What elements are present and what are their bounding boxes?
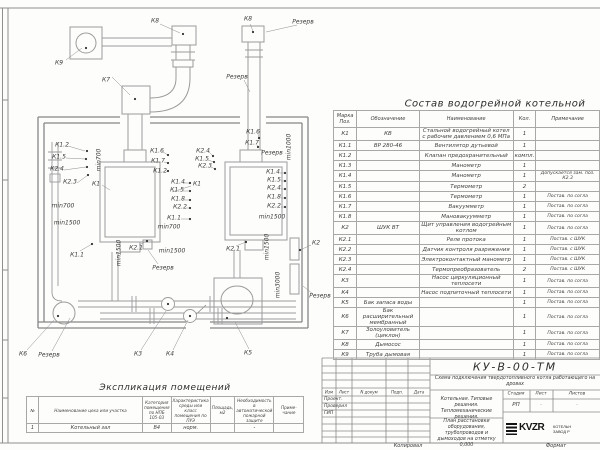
format-label: Формат xyxy=(546,443,566,449)
comp-cell-q: компл. xyxy=(513,151,536,161)
comp-cell-p: Постав. по согла xyxy=(536,350,600,360)
comp-cell-n: Насос циркуляционный теплосети xyxy=(419,275,513,288)
rev-col-izm: Изм xyxy=(325,390,333,395)
doc-title: Схема подключения твердотопливного котла… xyxy=(432,376,598,388)
kvzr-wave-logo-icon xyxy=(506,423,517,435)
expl-col-header: Необходимость в автоматической пожарной … xyxy=(235,397,274,424)
comp-cell-d xyxy=(357,212,420,222)
comp-cell-d xyxy=(357,171,420,182)
comp-cell-m: К7 xyxy=(334,327,357,340)
expl-col-header: № xyxy=(27,397,39,424)
comp-cell-q: 1 xyxy=(513,255,536,265)
comp-row: К4Насос подпиточный теплосети1Постав. по… xyxy=(334,288,600,298)
equipment xyxy=(53,150,299,324)
comp-cell-p: Постав. по согла xyxy=(536,275,600,288)
flue-gas-train xyxy=(70,26,264,150)
comp-cell-q: 1 xyxy=(513,288,536,298)
comp-cell-q: 2 xyxy=(513,265,536,275)
comp-cell-p: Постав. с ШУК xyxy=(536,255,600,265)
comp-cell-q: 1 xyxy=(513,128,536,141)
drawing-sheet: { "composition_table": { "title": "Соста… xyxy=(0,0,600,450)
comp-cell-n: Манометр xyxy=(419,161,513,171)
comp-cell-q: 1 xyxy=(513,222,536,235)
comp-cell-p: Постав. по согла xyxy=(536,288,600,298)
comp-cell-p: Постав. по согла xyxy=(536,192,600,202)
expl-col-header: Категория помещения по НПБ 105-03 xyxy=(143,397,172,424)
comp-cell-p: Постав. с ШУК xyxy=(536,235,600,245)
comp-row: К9Труба дымовая1Постав. по согла xyxy=(334,350,600,360)
expl-row: 1Котельный залВ4норм.- xyxy=(27,424,304,433)
comp-cell-n: Стальной водогрейный котел с рабочим дав… xyxy=(419,128,513,141)
comp-cell-d: ШУК ВТ xyxy=(357,222,420,235)
comp-cell-m: К6 xyxy=(334,308,357,327)
comp-cell-n: Вакуумметр xyxy=(419,202,513,212)
comp-cell-d xyxy=(357,275,420,288)
comp-cell-n xyxy=(419,327,513,340)
comp-cell-n: Вентилятор дутьевой xyxy=(419,141,513,151)
stage-value: РП xyxy=(512,402,519,408)
comp-cell-d: Труба дымовая xyxy=(357,350,420,360)
comp-cell-p: Постав. по согла xyxy=(536,298,600,308)
role-designer: Проект. xyxy=(324,397,343,402)
comp-cell-d xyxy=(357,245,420,255)
comp-cell-m: К5 xyxy=(334,298,357,308)
sheets-label: Листов xyxy=(569,392,585,397)
comp-cell-q: 1 xyxy=(513,327,536,340)
comp-cell-m: К2 xyxy=(334,222,357,235)
comp-cell-m: К3 xyxy=(334,275,357,288)
comp-cell-m: К8 xyxy=(334,340,357,350)
comp-cell-d xyxy=(357,235,420,245)
comp-cell-p: Допускается зам. поз. К2.3 xyxy=(536,171,600,182)
comp-cell-q: 1 xyxy=(513,308,536,327)
comp-cell-q: 1 xyxy=(513,161,536,171)
sheet-name: План расстановки оборудования, трубопров… xyxy=(431,419,502,449)
kvzr-logo-text: KVZR xyxy=(519,422,544,433)
comp-cell-q: 1 xyxy=(513,192,536,202)
comp-cell-n: Реле протока xyxy=(419,235,513,245)
comp-cell-n: Клапан предохранительный xyxy=(419,151,513,161)
comp-cell-d: Бак расширительный мембранный xyxy=(357,308,420,327)
comp-cell-p: Постав. по согла xyxy=(536,202,600,212)
comp-cell-m: К2.1 xyxy=(334,235,357,245)
comp-cell-n: Насос подпиточный теплосети xyxy=(419,288,513,298)
comp-cell-q: 1 xyxy=(513,350,536,360)
comp-cell-d: Бак запаса воды xyxy=(357,298,420,308)
expl-col-header: Характеристика среды или класс помещения… xyxy=(171,397,210,424)
expl-cell: 1 xyxy=(27,424,39,433)
comp-cell-m: К1.7 xyxy=(334,202,357,212)
expl-col-header: Наименование цеха или участка xyxy=(39,397,143,424)
comp-cell-d xyxy=(357,255,420,265)
composition-table-title: Состав водогрейной котельной xyxy=(405,99,586,110)
comp-cell-q: 1 xyxy=(513,275,536,288)
building-walls xyxy=(38,117,308,328)
comp-cell-d xyxy=(357,265,420,275)
comp-cell-n: Термометр xyxy=(419,182,513,192)
rev-col-list: Лист xyxy=(339,390,349,395)
comp-row: К7Золоуловитель (циклон)1Постав. по согл… xyxy=(334,327,600,340)
explication-table-title: Экспликация помещений xyxy=(99,383,230,393)
comp-col-header: Примечание xyxy=(536,111,600,128)
expl-cell xyxy=(274,424,304,433)
comp-cell-m: К9 xyxy=(334,350,357,360)
project-name: Котельная. Типовые решения. Тепломеханич… xyxy=(431,397,502,421)
comp-cell-n xyxy=(419,350,513,360)
sheet-value: - xyxy=(540,403,542,408)
comp-cell-m: К1.4 xyxy=(334,171,357,182)
comp-row: К1.4Манометр1Допускается зам. поз. К2.3 xyxy=(334,171,600,182)
comp-cell-q: 1 xyxy=(513,340,536,350)
comp-cell-m: К2.4 xyxy=(334,265,357,275)
comp-cell-p xyxy=(536,161,600,171)
expl-col-header: Приме- чание xyxy=(274,397,304,424)
comp-cell-n xyxy=(419,340,513,350)
comp-cell-q: 1 xyxy=(513,141,536,151)
comp-cell-q: 1 xyxy=(513,235,536,245)
comp-cell-n: Термометр xyxy=(419,192,513,202)
piping xyxy=(48,142,296,324)
comp-cell-d xyxy=(357,182,420,192)
comp-row: К3Насос циркуляционный теплосети1Постав.… xyxy=(334,275,600,288)
comp-cell-m: К2.3 xyxy=(334,255,357,265)
company-name-line2: ЗАВОД Р xyxy=(553,429,570,434)
rev-col-podp: Подп. xyxy=(391,390,403,395)
doc-number: КУ-В-00-ТМ xyxy=(473,361,557,374)
comp-cell-d xyxy=(357,288,420,298)
comp-row: К2.2Датчик контроля разряжения1Постав. с… xyxy=(334,245,600,255)
comp-cell-q: 1 xyxy=(513,212,536,222)
comp-row: К1.1ВР 280-46Вентилятор дутьевой1 xyxy=(334,141,600,151)
comp-row: К2ШУК ВТЩит управления водогрейным котло… xyxy=(334,222,600,235)
comp-cell-n xyxy=(419,298,513,308)
expl-cell xyxy=(210,424,235,433)
comp-cell-m: К1 xyxy=(334,128,357,141)
comp-cell-d: ВР 280-46 xyxy=(357,141,420,151)
comp-cell-p: Постав. с ШУК xyxy=(536,265,600,275)
comp-row: К1.2Клапан предохранительныйкомпл. xyxy=(334,151,600,161)
comp-row: К1.6Термометр1Постав. по согла xyxy=(334,192,600,202)
comp-cell-n xyxy=(419,308,513,327)
comp-row: К1.7Вакуумметр1Постав. по согла xyxy=(334,202,600,212)
comp-cell-p xyxy=(536,141,600,151)
comp-cell-p: Постав. с ШУК xyxy=(536,245,600,255)
comp-row: К1КВСтальной водогрейный котел с рабочим… xyxy=(334,128,600,141)
copied-by-label: Копировал xyxy=(394,443,423,449)
role-gip: ГИП xyxy=(324,411,333,416)
comp-cell-d xyxy=(357,192,420,202)
comp-cell-q: 1 xyxy=(513,245,536,255)
comp-cell-p xyxy=(536,151,600,161)
comp-row: К5Бак запаса воды1Постав. по согла xyxy=(334,298,600,308)
comp-cell-q: 1 xyxy=(513,298,536,308)
comp-col-header: Кол. xyxy=(513,111,536,128)
comp-cell-p: Постав. по согла xyxy=(536,327,600,340)
comp-cell-n: Мановакуумметр xyxy=(419,212,513,222)
comp-cell-q: 2 xyxy=(513,182,536,192)
expl-cell: норм. xyxy=(171,424,210,433)
comp-cell-d xyxy=(357,202,420,212)
comp-cell-m: К1.2 xyxy=(334,151,357,161)
comp-row: К2.3Электроконтактный манометр1Постав. с… xyxy=(334,255,600,265)
comp-cell-p: Постав. по согла xyxy=(536,308,600,327)
comp-cell-n: Щит управления водогрейным котлом xyxy=(419,222,513,235)
rev-col-ndokum: N докум xyxy=(360,390,377,395)
comp-row: К6Бак расширительный мембранный1Постав. … xyxy=(334,308,600,327)
composition-table: Марка Поз.ОбозначениеНаименованиеКол.При… xyxy=(333,110,600,360)
comp-cell-n: Манометр xyxy=(419,171,513,182)
comp-cell-n: Электроконтактный манометр xyxy=(419,255,513,265)
comp-cell-p: Постав. по согла xyxy=(536,212,600,222)
comp-cell-n: Датчик контроля разряжения xyxy=(419,245,513,255)
rev-col-data: Дата xyxy=(414,390,424,395)
comp-cell-m: К1.3 xyxy=(334,161,357,171)
comp-row: К1.8Мановакуумметр1Постав. по согла xyxy=(334,212,600,222)
comp-cell-m: К4 xyxy=(334,288,357,298)
comp-col-header: Обозначение xyxy=(357,111,420,128)
comp-cell-d: Дымосос xyxy=(357,340,420,350)
comp-cell-m: К1.6 xyxy=(334,192,357,202)
comp-cell-p xyxy=(536,182,600,192)
comp-cell-d xyxy=(357,151,420,161)
expl-col-header: Площадь, м2 xyxy=(210,397,235,424)
sheets-value: - xyxy=(576,403,578,408)
expl-cell: В4 xyxy=(143,424,172,433)
comp-cell-p: Постав. по согла xyxy=(536,340,600,350)
stage-label: Стадия xyxy=(508,392,525,397)
comp-row: К1.3Манометр1 xyxy=(334,161,600,171)
sheet-label: Лист xyxy=(535,392,546,397)
comp-col-header: Наименование xyxy=(419,111,513,128)
comp-cell-q: 1 xyxy=(513,202,536,212)
comp-cell-d xyxy=(357,161,420,171)
comp-cell-q: 1 xyxy=(513,171,536,182)
comp-row: К1.5Термометр2 xyxy=(334,182,600,192)
comp-cell-p xyxy=(536,128,600,141)
comp-cell-d: Золоуловитель (циклон) xyxy=(357,327,420,340)
role-checker: Проверил xyxy=(324,404,347,409)
expl-cell: Котельный зал xyxy=(39,424,143,433)
comp-row: К8Дымосос1Постав. по согла xyxy=(334,340,600,350)
comp-cell-m: К2.2 xyxy=(334,245,357,255)
comp-row: К2.1Реле протока1Постав. с ШУК xyxy=(334,235,600,245)
comp-cell-n: Термопреобразователь xyxy=(419,265,513,275)
comp-cell-p: Постав. по согла xyxy=(536,222,600,235)
comp-cell-m: К1.8 xyxy=(334,212,357,222)
explication-table: №Наименование цеха или участкаКатегория … xyxy=(26,396,304,433)
expl-cell: - xyxy=(235,424,274,433)
comp-cell-m: К1.1 xyxy=(334,141,357,151)
comp-cell-d: КВ xyxy=(357,128,420,141)
comp-cell-m: К1.5 xyxy=(334,182,357,192)
comp-row: К2.4Термопреобразователь2Постав. с ШУК xyxy=(334,265,600,275)
anchor-dots xyxy=(57,31,301,319)
comp-col-header: Марка Поз. xyxy=(334,111,357,128)
